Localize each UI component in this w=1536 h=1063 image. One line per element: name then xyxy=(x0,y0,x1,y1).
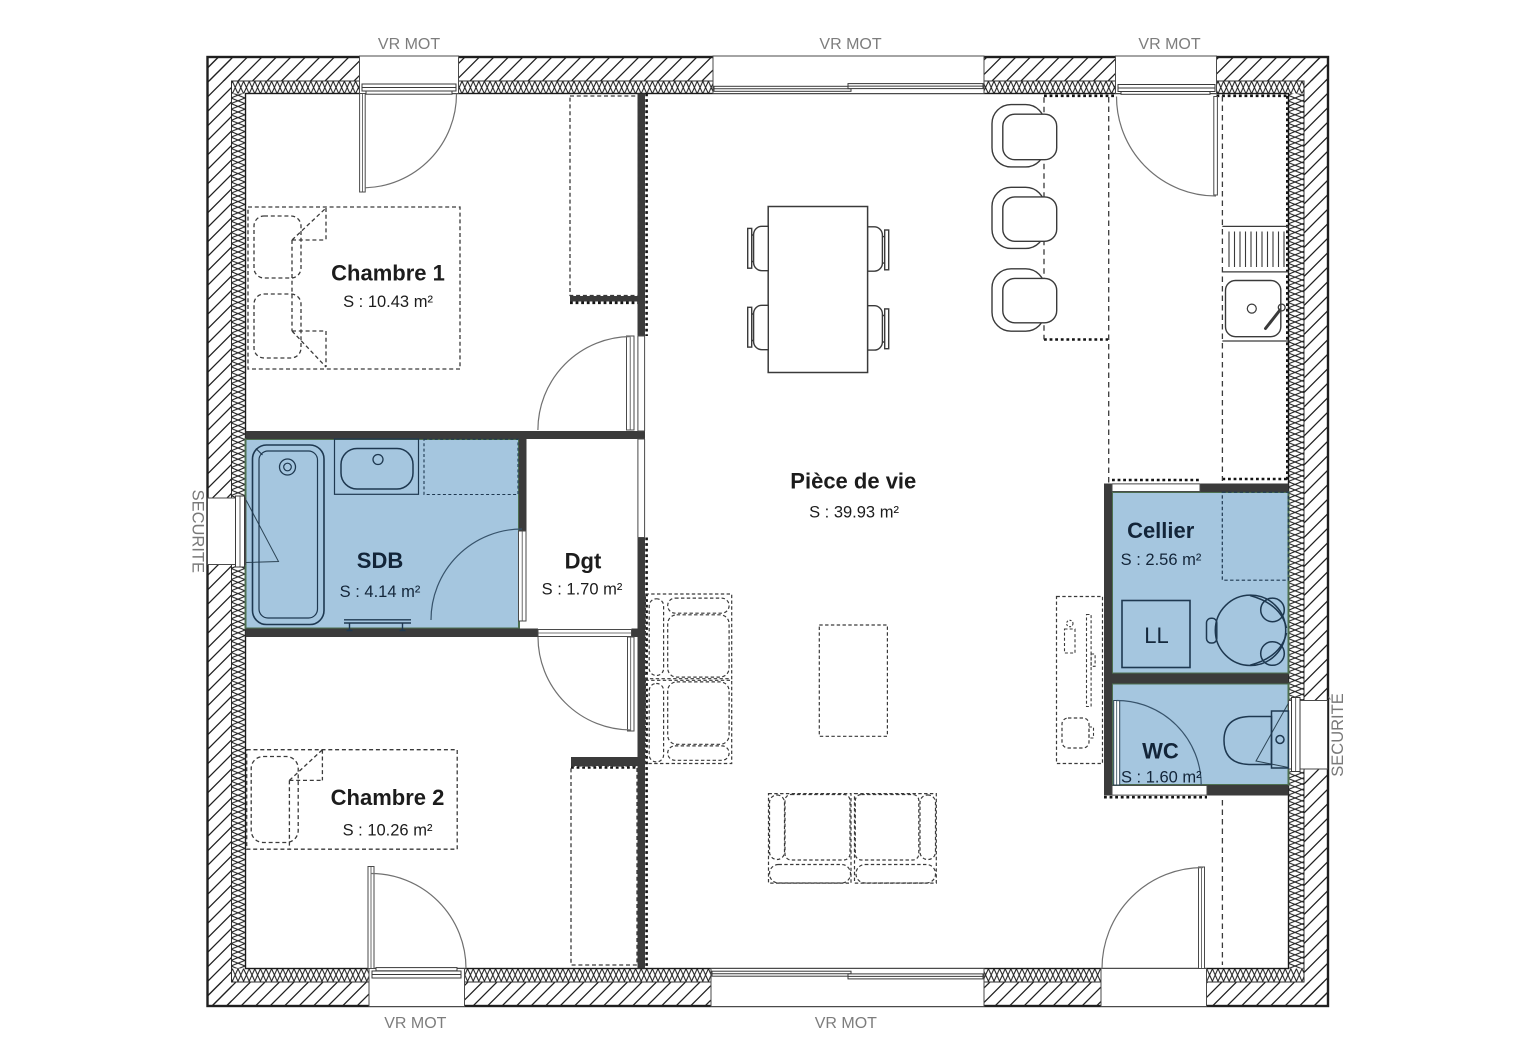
svg-text:S : 39.93 m²: S : 39.93 m² xyxy=(809,504,899,522)
svg-text:Cellier: Cellier xyxy=(1127,518,1195,543)
svg-text:LL: LL xyxy=(1144,623,1168,648)
svg-text:VR MOT: VR MOT xyxy=(384,1015,446,1032)
svg-text:WC: WC xyxy=(1142,739,1179,764)
svg-text:SECURITÉ: SECURITÉ xyxy=(1328,693,1347,776)
svg-text:Pièce de vie: Pièce de vie xyxy=(790,469,916,494)
svg-text:S : 10.43 m²: S : 10.43 m² xyxy=(343,293,433,311)
svg-text:Chambre 2: Chambre 2 xyxy=(331,785,445,810)
svg-text:VR MOT: VR MOT xyxy=(815,1015,877,1032)
svg-text:VR MOT: VR MOT xyxy=(1138,36,1200,53)
svg-text:Chambre 1: Chambre 1 xyxy=(331,261,445,286)
svg-text:S : 4.14 m²: S : 4.14 m² xyxy=(340,583,421,601)
svg-text:SECURITE: SECURITE xyxy=(189,490,207,573)
svg-text:Dgt: Dgt xyxy=(565,549,602,574)
svg-text:SDB: SDB xyxy=(357,548,403,573)
svg-text:VR MOT: VR MOT xyxy=(378,36,440,53)
svg-text:S : 1.60 m²: S : 1.60 m² xyxy=(1121,769,1202,787)
svg-text:S : 2.56 m²: S : 2.56 m² xyxy=(1121,551,1202,569)
svg-text:S : 10.26 m²: S : 10.26 m² xyxy=(343,822,433,840)
svg-text:S : 1.70 m²: S : 1.70 m² xyxy=(542,581,623,599)
svg-text:VR MOT: VR MOT xyxy=(819,36,881,53)
